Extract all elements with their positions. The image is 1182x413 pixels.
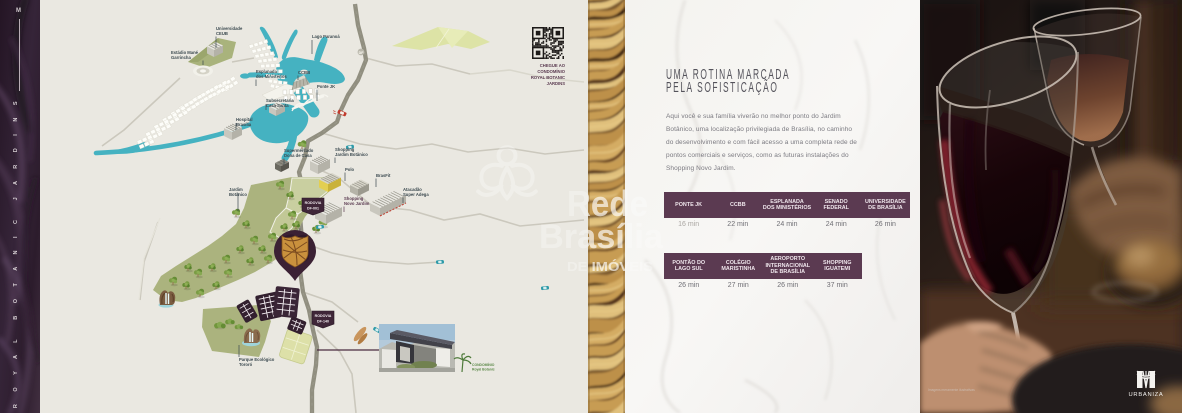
svg-text:URBANIZA: URBANIZA xyxy=(1129,392,1164,398)
svg-text:RODOVIA: RODOVIA xyxy=(305,201,322,205)
svg-text:Garrincha: Garrincha xyxy=(171,55,191,60)
svg-text:CHEGUE AO: CHEGUE AO xyxy=(540,63,566,68)
svg-text:Imagens meramente ilustrativas: Imagens meramente ilustrativas xyxy=(928,388,975,392)
svg-text:CEUB: CEUB xyxy=(216,31,228,36)
svg-text:Tororó: Tororó xyxy=(239,362,253,367)
svg-text:DF: DF xyxy=(359,51,365,55)
svg-text:DF-001: DF-001 xyxy=(307,207,319,211)
svg-text:RODOVIA: RODOVIA xyxy=(315,314,332,318)
svg-text:CONDOMÍNIO: CONDOMÍNIO xyxy=(472,362,495,367)
svg-text:Super Adega: Super Adega xyxy=(403,192,429,197)
svg-text:Casa Santa: Casa Santa xyxy=(266,103,289,108)
svg-text:Lago Paranoá: Lago Paranoá xyxy=(312,34,340,39)
svg-text:CCBB: CCBB xyxy=(298,70,310,75)
svg-text:ROYAL BOTANIC: ROYAL BOTANIC xyxy=(531,75,565,80)
svg-text:BrasFit: BrasFit xyxy=(376,173,391,178)
svg-text:Polo: Polo xyxy=(345,167,355,172)
svg-text:dos Ministérios: dos Ministérios xyxy=(256,74,287,79)
svg-text:Royal Botanic: Royal Botanic xyxy=(472,368,495,372)
svg-text:JARDINS: JARDINS xyxy=(547,81,566,86)
svg-text:Jardim Botânico: Jardim Botânico xyxy=(335,152,368,157)
svg-text:Ponte JK: Ponte JK xyxy=(317,84,335,89)
svg-text:DF-140: DF-140 xyxy=(317,320,329,324)
svg-text:Dona de Casa: Dona de Casa xyxy=(284,153,312,158)
svg-text:CONDOMÍNIO: CONDOMÍNIO xyxy=(537,69,565,74)
svg-text:Brasília: Brasília xyxy=(236,122,252,127)
svg-text:Novo Jardim: Novo Jardim xyxy=(344,201,370,206)
